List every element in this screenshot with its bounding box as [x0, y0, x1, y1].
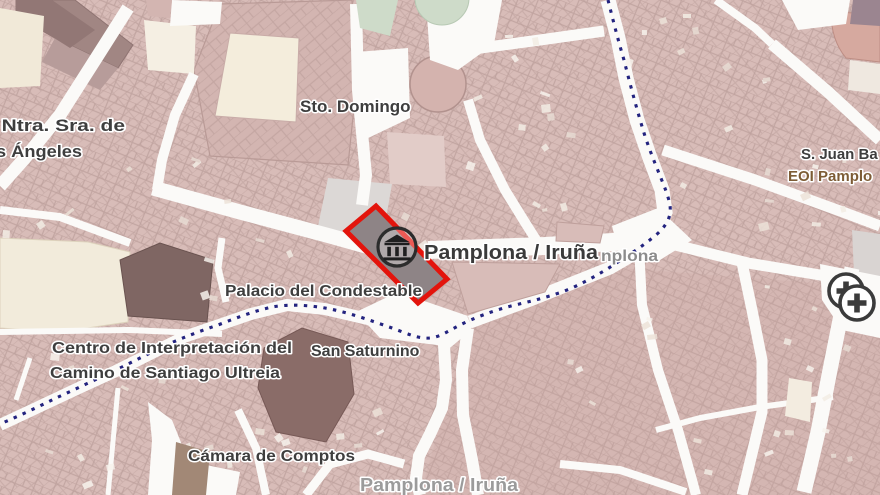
- svg-text:Pamplona / Iruña: Pamplona / Iruña: [424, 242, 599, 264]
- svg-text:Camino de Santiago Ultreia: Camino de Santiago Ultreia: [50, 365, 280, 382]
- svg-text:Palacio del Condestable: Palacio del Condestable: [225, 283, 422, 300]
- svg-text:Centro de Interpretación del: Centro de Interpretación del: [52, 340, 292, 357]
- svg-text:San Saturnino: San Saturnino: [311, 343, 420, 360]
- svg-text:nplona: nplona: [601, 248, 658, 265]
- svg-text:. Ntra. Sra. de: . Ntra. Sra. de: [0, 116, 125, 135]
- svg-text:EOI Pamplo: EOI Pamplo: [788, 168, 872, 185]
- svg-text:Sto. Domingo: Sto. Domingo: [300, 97, 410, 116]
- svg-text:Pamplona / Iruña: Pamplona / Iruña: [360, 475, 519, 495]
- svg-text:S. Juan Ba: S. Juan Ba: [801, 146, 878, 163]
- svg-text:s Ángeles: s Ángeles: [0, 142, 82, 161]
- svg-text:Cámara de Comptos: Cámara de Comptos: [188, 448, 355, 465]
